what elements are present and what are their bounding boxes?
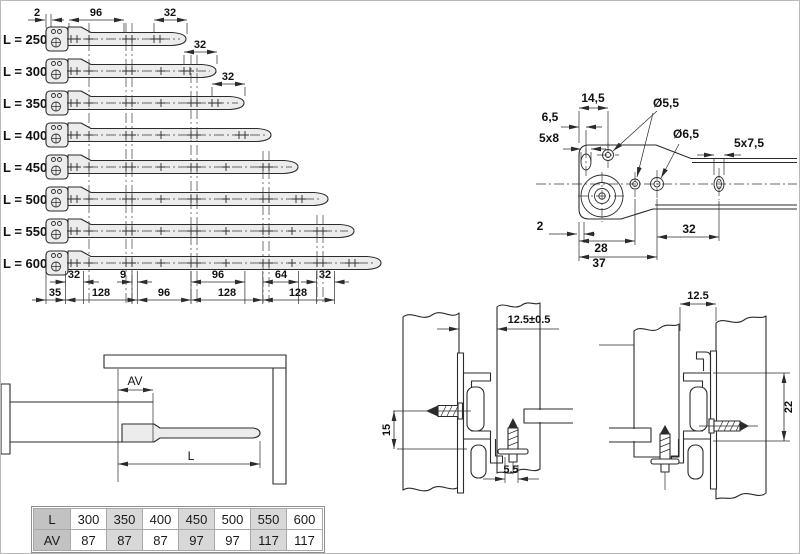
slide-front-bracket	[46, 187, 68, 211]
slide-lengths-diagram: 2 96 32 32 32 32 9 96 64 32 35 128	[3, 7, 381, 304]
table-cell: 350	[107, 509, 143, 530]
table-cell: 117	[251, 530, 287, 551]
slide-front-bracket	[46, 59, 68, 83]
table-cell: 300	[71, 509, 107, 530]
dim-b2-35: 35	[49, 287, 61, 299]
slide-rail: L = 250	[3, 27, 186, 51]
dim-hole-pitch: 96	[90, 7, 102, 19]
dimension-table: L300350400450500550600AV8787879797117117	[31, 506, 325, 553]
cabinet-side-board	[716, 316, 766, 499]
drawer-bottom-panel	[524, 410, 573, 422]
table-cell: 500	[215, 509, 251, 530]
slide-front-bracket	[46, 251, 68, 275]
drawer-installation-side-view: AV L	[1, 355, 286, 484]
rail-runner-profile	[467, 387, 484, 431]
dim-gap-12-5: 12.5±0.5	[508, 314, 551, 326]
dim-14-5: 14,5	[581, 91, 605, 105]
rail-runner-profile	[690, 387, 707, 431]
dim-gap-12-5: 12.5	[687, 290, 708, 302]
slide-rail-body	[68, 219, 354, 238]
dim-slot-5x7-5: 5x7,5	[734, 136, 764, 150]
slide-length-label: L = 300	[3, 64, 47, 79]
dim-b1-32: 32	[68, 269, 80, 281]
slide-rail-body	[68, 59, 216, 78]
technical-drawing-page: 2 96 32 32 32 32 9 96 64 32 35 128	[0, 0, 800, 554]
slide-arm	[122, 424, 260, 442]
dim-32: 32	[682, 222, 696, 236]
dim-b2-128b: 128	[218, 287, 236, 299]
cabinet-side-board	[403, 313, 459, 491]
dim-height-22: 22	[783, 401, 795, 413]
drawer-bottom-panel	[610, 429, 651, 441]
dim-37: 37	[592, 256, 606, 270]
table-row: L300350400450500550600	[34, 509, 323, 530]
slide-front-bracket	[46, 155, 68, 179]
dim-b2-96: 96	[158, 287, 170, 299]
table-cell: 400	[143, 509, 179, 530]
dim-b2-128c: 128	[289, 287, 307, 299]
slide-front-bracket	[46, 123, 68, 147]
slide-rail-body	[68, 155, 298, 174]
dim-offset-5-5: 5.5	[503, 464, 518, 476]
slide-rail: L = 350	[3, 91, 244, 115]
slide-rail: L = 400	[3, 123, 271, 147]
table-cell: 117	[287, 530, 323, 551]
slide-length-label: L = 250	[3, 32, 47, 47]
front-bracket-detail: 14,5 6,5 5x8 Ø5,5 Ø6,5 5x7,5 2 28 32 37	[536, 91, 797, 270]
slide-length-label: L = 500	[3, 192, 47, 207]
table-cell: 97	[179, 530, 215, 551]
dim-front-offset: 2	[34, 7, 40, 19]
dim-2: 2	[537, 219, 544, 233]
dim-28: 28	[594, 241, 608, 255]
slide-rail-body	[68, 187, 328, 206]
table-row: AV8787879797117117	[34, 530, 323, 551]
dim-av: AV	[127, 374, 142, 388]
table-cell: 600	[287, 509, 323, 530]
slide-length-label: L = 450	[3, 160, 47, 175]
dim-callout-32-a: 32	[194, 39, 206, 51]
rail-mounting-plate	[458, 353, 464, 493]
dim-height-15: 15	[381, 424, 393, 436]
slide-rail-body	[68, 251, 381, 270]
dim-end-spacing: 32	[164, 7, 176, 19]
mounting-cross-section-right: 12.5 22	[599, 290, 795, 499]
table-cell: 550	[251, 509, 287, 530]
dim-b1-64: 64	[275, 269, 288, 281]
slide-front-bracket	[46, 91, 68, 115]
dim-b1-96: 96	[212, 269, 224, 281]
slide-length-label: L = 550	[3, 224, 47, 239]
dim-callout-32-b: 32	[222, 71, 234, 83]
dim-b1-32b: 32	[319, 269, 331, 281]
slide-front-bracket	[46, 219, 68, 243]
drawer-front-panel	[1, 384, 10, 454]
table-cell: 97	[215, 530, 251, 551]
slide-rail: L = 500	[3, 187, 328, 211]
slide-length-label: L = 600	[3, 256, 47, 271]
cabinet-top-panel	[104, 355, 286, 368]
table-header-cell: L	[34, 509, 71, 530]
dim-dia-5-5: Ø5,5	[653, 96, 679, 110]
table-header-cell: AV	[34, 530, 71, 551]
slide-rail: L = 450	[3, 155, 298, 179]
dim-slot-5x8: 5x8	[539, 131, 559, 145]
dim-6-5: 6,5	[542, 110, 559, 124]
dim-b2-128a: 128	[92, 287, 110, 299]
slide-rails: L = 250L = 300L = 350L = 400L = 450L = 5…	[3, 27, 381, 275]
slide-length-label: L = 350	[3, 96, 47, 111]
table-cell: 87	[71, 530, 107, 551]
dim-b1-9: 9	[120, 269, 126, 281]
mounting-cross-section-left: 12.5±0.5 15 5.5	[381, 303, 573, 493]
table-cell: 87	[143, 530, 179, 551]
dim-l: L	[188, 449, 195, 463]
slide-rail: L = 550	[3, 219, 354, 243]
slide-front-bracket	[46, 27, 68, 51]
dim-dia-6-5: Ø6,5	[673, 127, 699, 141]
slide-length-label: L = 400	[3, 128, 47, 143]
drawing-canvas: 2 96 32 32 32 32 9 96 64 32 35 128	[1, 1, 799, 553]
table-cell: 87	[107, 530, 143, 551]
cabinet-side-panel	[273, 368, 286, 484]
table-cell: 450	[179, 509, 215, 530]
slide-rail-body	[68, 123, 271, 142]
slide-rail-body	[68, 27, 186, 46]
